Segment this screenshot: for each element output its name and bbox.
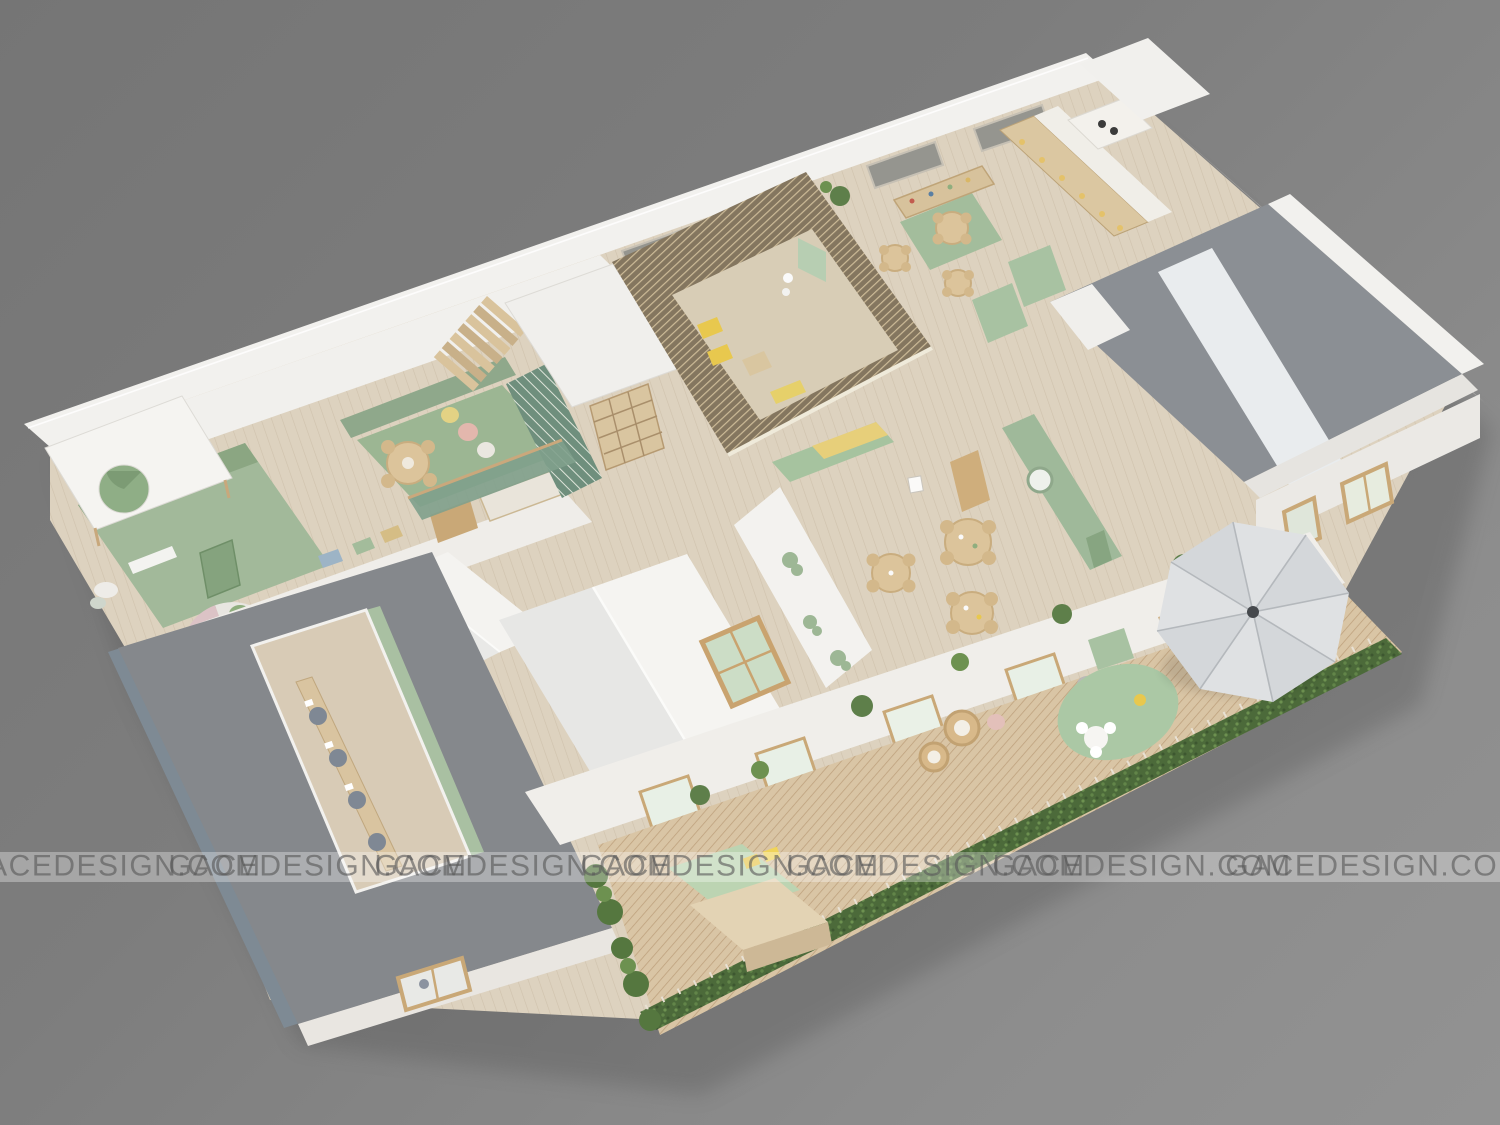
wall-picture [908,476,923,493]
entry-sink [94,582,118,598]
porthole-window [1028,468,1052,492]
kids-chair [381,474,395,488]
kids-chair [421,440,435,454]
indoor-plant [830,186,850,206]
pouf-yellow [441,407,459,423]
table-setting [402,457,414,469]
pouf-pink [458,423,478,441]
sculpture [783,273,793,283]
kids-chair [423,473,437,487]
round-table-group [940,519,996,565]
indoor-plant [820,181,832,193]
watermark-text: GACEDESIGN.COM [1225,849,1500,883]
round-table-group [867,554,916,593]
floorplan-3d-render [0,0,1500,1125]
round-table-group [946,592,998,634]
umbrella-hub [1247,606,1259,618]
sculpture [782,288,790,296]
toy [1134,694,1146,706]
entry-basket [90,597,106,609]
round-table-group [942,270,974,297]
watermark-band: GACEDESIGN.COM GACEDESIGN.COM GACEDESIGN… [0,852,1500,882]
round-table-group [933,212,972,245]
chair-behind-window [419,979,429,989]
render-canvas: GACEDESIGN.COM GACEDESIGN.COM GACEDESIGN… [0,0,1500,1125]
pouf-pink [987,714,1005,730]
kids-chair [381,440,395,454]
pouf-white [477,442,495,458]
round-table-group [879,245,911,272]
